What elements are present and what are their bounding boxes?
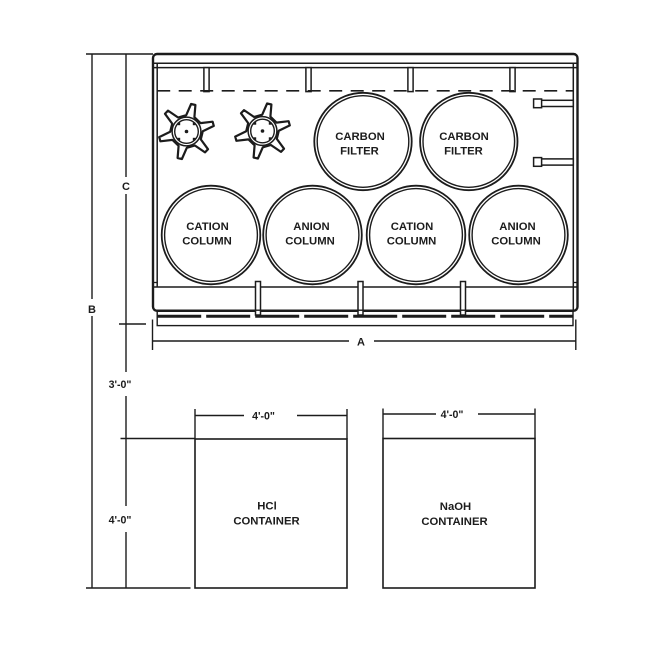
svg-text:A: A: [357, 336, 365, 348]
svg-text:ANION: ANION: [499, 221, 535, 233]
svg-text:4'-0": 4'-0": [109, 515, 132, 527]
svg-text:CARBON: CARBON: [335, 131, 385, 143]
svg-text:CONTAINER: CONTAINER: [233, 515, 299, 527]
svg-text:CATION: CATION: [186, 221, 228, 233]
svg-text:ANION: ANION: [293, 221, 329, 233]
svg-text:COLUMN: COLUMN: [387, 236, 437, 248]
svg-text:4'-0": 4'-0": [441, 409, 464, 421]
svg-text:COLUMN: COLUMN: [285, 236, 335, 248]
svg-text:HCl: HCl: [257, 501, 276, 513]
svg-text:CONTAINER: CONTAINER: [421, 516, 487, 528]
svg-text:C: C: [122, 181, 130, 193]
svg-text:CARBON: CARBON: [439, 131, 489, 143]
svg-text:FILTER: FILTER: [444, 146, 483, 158]
svg-text:4'-0": 4'-0": [252, 411, 275, 423]
svg-text:3'-0": 3'-0": [109, 379, 132, 391]
svg-text:B: B: [88, 304, 96, 316]
svg-text:FILTER: FILTER: [340, 146, 379, 158]
svg-text:CATION: CATION: [391, 221, 433, 233]
svg-text:COLUMN: COLUMN: [182, 236, 232, 248]
svg-text:NaOH: NaOH: [440, 501, 471, 513]
svg-text:COLUMN: COLUMN: [491, 236, 541, 248]
